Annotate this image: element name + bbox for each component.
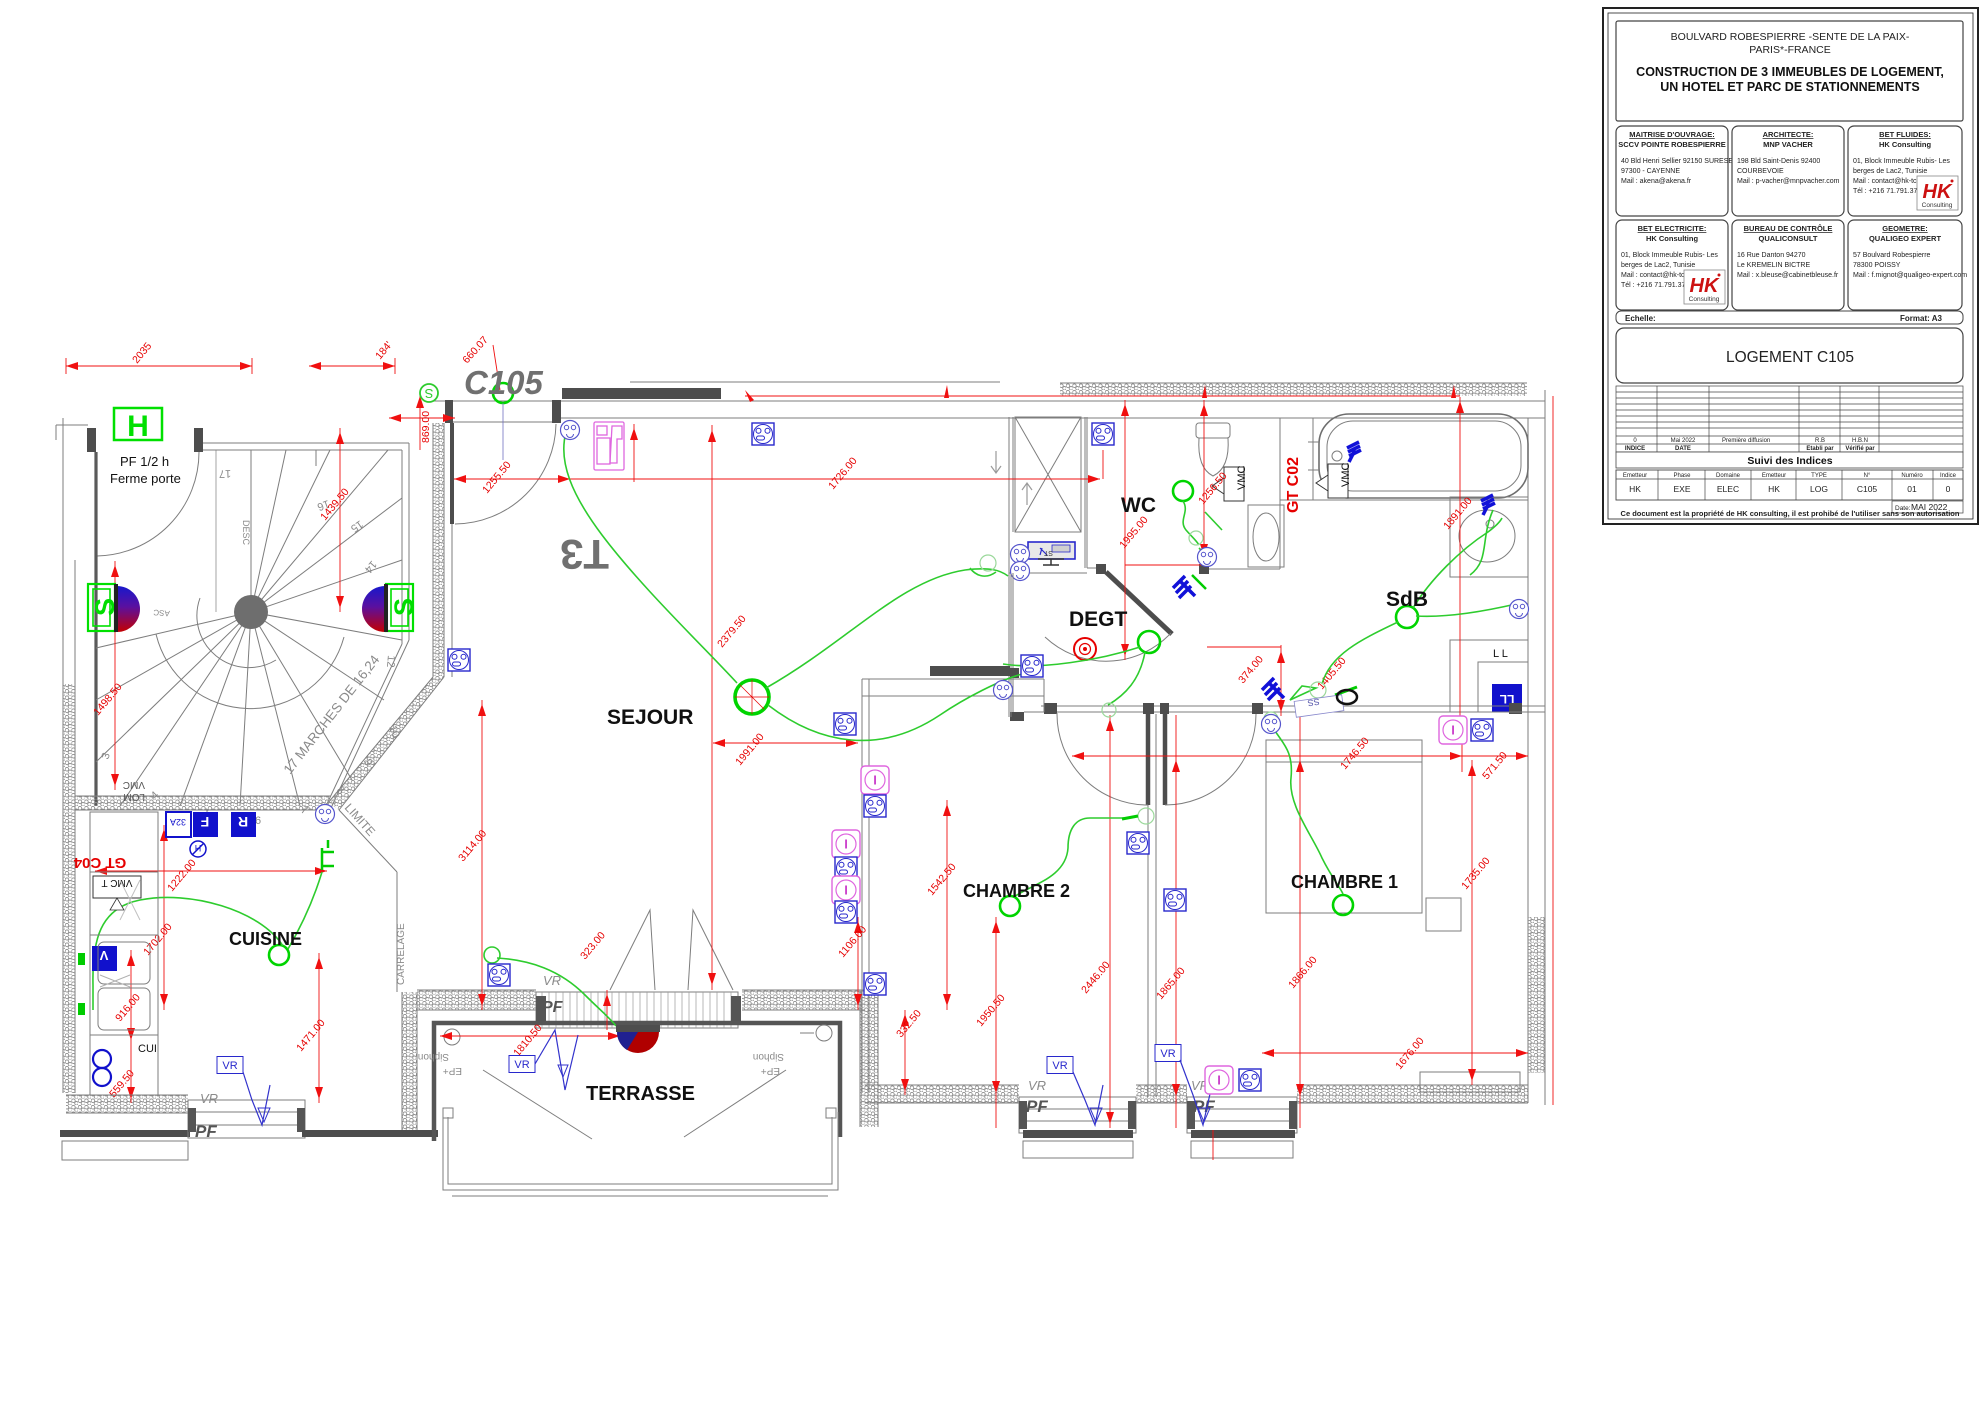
svg-text:Vérifié par: Vérifié par [1845,446,1875,452]
svg-text:Numéro: Numéro [1901,473,1923,479]
svg-text:WC: WC [1121,494,1156,517]
svg-text:PF: PF [542,999,564,1016]
svg-text:17: 17 [219,467,232,479]
svg-text:Mail : p-vacher@mnpvacher.com: Mail : p-vacher@mnpvacher.com [1737,178,1840,185]
svg-text:EXE: EXE [1673,484,1690,494]
svg-text:berges de Lac2, Tunisie: berges de Lac2, Tunisie [1621,262,1695,269]
svg-text:198 Bld Saint-Denis 92400: 198 Bld Saint-Denis 92400 [1737,158,1820,165]
svg-text:869.00: 869.00 [420,411,432,443]
svg-text:HK Consulting: HK Consulting [1879,140,1931,149]
svg-text:PF 1/2 h: PF 1/2 h [120,454,169,469]
svg-text:Ce document est la propriété d: Ce document est la propriété de HK consu… [1621,509,1960,518]
svg-text:SS: SS [1307,697,1320,709]
svg-text:0: 0 [1946,484,1951,494]
svg-text:Suivi des Indices: Suivi des Indices [1747,455,1832,467]
svg-text:EP+: EP+ [443,1065,462,1076]
svg-text:CARRELAGE: CARRELAGE [396,923,407,985]
svg-text:C105: C105 [464,364,544,401]
svg-text:HK: HK [1629,484,1641,494]
svg-text:S: S [389,598,419,616]
svg-text:Consulting: Consulting [1689,296,1720,303]
svg-text:Mail : f.mignot@qualigeo-exper: Mail : f.mignot@qualigeo-expert.com [1853,272,1967,279]
svg-text:T3: T3 [560,531,609,578]
svg-text:01, Block Immeuble Rubis- Les: 01, Block Immeuble Rubis- Les [1853,158,1950,165]
svg-text:CONSTRUCTION DE 3 IMMEUBLES DE: CONSTRUCTION DE 3 IMMEUBLES DE LOGEMENT, [1636,65,1944,79]
svg-text:SEJOUR: SEJOUR [607,706,693,729]
svg-text:CUI: CUI [138,1043,157,1055]
svg-text:VMC: VMC [1340,463,1352,488]
svg-text:QUALIGEO EXPERT: QUALIGEO EXPERT [1869,234,1942,243]
svg-text:97300 - CAYENNE: 97300 - CAYENNE [1621,168,1680,175]
svg-text:HK: HK [1768,484,1780,494]
svg-text:VMC: VMC [123,779,145,790]
svg-text:Le KREMELIN BICTRE: Le KREMELIN BICTRE [1737,262,1810,269]
svg-text:Emetteur: Emetteur [1623,473,1647,479]
svg-text:SCCV POINTE ROBESPIERRE: SCCV POINTE ROBESPIERRE [1618,140,1726,149]
svg-text:01: 01 [1907,484,1917,494]
svg-text:VR: VR [200,1091,218,1106]
svg-text:Consulting: Consulting [1922,202,1953,209]
svg-text:Emetteur: Emetteur [1762,473,1786,479]
svg-text:Siphon: Siphon [418,1051,449,1062]
svg-text:N°: N° [1864,473,1871,479]
svg-text:LOG: LOG [1810,484,1828,494]
svg-text:V: V [99,948,108,963]
svg-text:VMC T: VMC T [102,877,133,888]
svg-text:Ferme porte: Ferme porte [110,471,181,486]
svg-text:40 Bld Henri Sellier 92150 SUR: 40 Bld Henri Sellier 92150 SURESENS [1621,158,1743,165]
svg-text:DATE: DATE [1675,446,1691,452]
svg-text:DESC: DESC [241,520,251,546]
svg-text:MAITRISE D'OUVRAGE:: MAITRISE D'OUVRAGE: [1629,130,1715,139]
svg-text:PF: PF [195,1122,217,1141]
svg-text:PF: PF [1026,1097,1048,1116]
svg-text:Tél : +216 71.791.373: Tél : +216 71.791.373 [1853,188,1921,195]
svg-text:ST: ST [1043,549,1053,556]
svg-text:R.B: R.B [1815,438,1825,444]
svg-text:SdB: SdB [1386,588,1428,611]
svg-text:12: 12 [384,655,397,668]
svg-text:ASC: ASC [153,608,170,618]
svg-text:H.B.N: H.B.N [1852,438,1868,444]
svg-text:BET FLUIDES:: BET FLUIDES: [1879,130,1931,139]
svg-text:Phase: Phase [1673,473,1691,479]
svg-text:QUALICONSULT: QUALICONSULT [1758,234,1817,243]
svg-text:LOGEMENT C105: LOGEMENT C105 [1726,349,1854,366]
svg-text:Indice: Indice [1940,473,1957,479]
svg-text:MNP VACHER: MNP VACHER [1763,140,1813,149]
svg-text:LOM: LOM [123,791,145,802]
svg-text:UN HOTEL ET PARC DE STATIONNEM: UN HOTEL ET PARC DE STATIONNEMENTS [1660,80,1920,94]
svg-text:INDICE: INDICE [1625,446,1645,452]
svg-text:Format: A3: Format: A3 [1900,314,1942,323]
svg-text:S: S [424,386,433,401]
svg-text:Mai 2022: Mai 2022 [1671,438,1696,444]
svg-text:GEOMETRE:: GEOMETRE: [1882,224,1927,233]
svg-text:VR: VR [1028,1078,1046,1093]
svg-text:BUREAU DE CONTRÔLE: BUREAU DE CONTRÔLE [1744,224,1833,233]
svg-text:GT C04: GT C04 [73,854,126,871]
svg-text:Domaine: Domaine [1716,473,1741,479]
svg-text:HK: HK [1923,181,1953,203]
svg-text:CUISINE: CUISINE [229,929,302,949]
svg-text:57 Boulvard Robespierre: 57 Boulvard Robespierre [1853,252,1931,259]
svg-text:DEGT: DEGT [1069,608,1128,631]
svg-text:TERRASSE: TERRASSE [586,1083,695,1105]
svg-text:CHAMBRE 2: CHAMBRE 2 [963,881,1070,901]
svg-text:BOULVARD ROBESPIERRE -SENTE DE: BOULVARD ROBESPIERRE -SENTE DE LA PAIX- [1671,31,1910,43]
svg-text:CHAMBRE 1: CHAMBRE 1 [1291,872,1398,892]
svg-text:ELEC: ELEC [1717,484,1739,494]
svg-text:78300 POISSY: 78300 POISSY [1853,262,1901,269]
svg-text:berges de Lac2, Tunisie: berges de Lac2, Tunisie [1853,168,1927,175]
svg-text:TYPE: TYPE [1811,473,1827,479]
svg-text:COURBEVOIE: COURBEVOIE [1737,168,1784,175]
svg-text:R: R [238,814,248,830]
svg-text:F: F [200,814,209,830]
svg-text:Siphon: Siphon [753,1051,784,1062]
svg-text:Echelle:: Echelle: [1625,314,1656,323]
svg-text:C105: C105 [1857,484,1878,494]
svg-text:PARIS*-FRANCE: PARIS*-FRANCE [1749,44,1830,56]
svg-text:16 Rue Danton 94270: 16 Rue Danton 94270 [1737,252,1806,259]
svg-text:Mail : x.bleuse@cabinetbleuse.: Mail : x.bleuse@cabinetbleuse.fr [1737,272,1839,279]
svg-text:HK Consulting: HK Consulting [1646,234,1698,243]
svg-text:EP+: EP+ [761,1065,780,1076]
svg-text:Tél : +216 71.791.373: Tél : +216 71.791.373 [1621,282,1689,289]
svg-text:Mail : akena@akena.fr: Mail : akena@akena.fr [1621,178,1692,185]
svg-text:Première diffusion: Première diffusion [1722,438,1770,444]
svg-text:01, Block Immeuble Rubis- Les: 01, Block Immeuble Rubis- Les [1621,252,1718,259]
svg-text:H: H [127,410,149,443]
svg-text:Etabli par: Etabli par [1806,446,1834,452]
svg-text:ARCHITECTE:: ARCHITECTE: [1763,130,1814,139]
svg-text:L L: L L [1493,648,1508,660]
svg-text:VMC: VMC [1236,466,1248,491]
svg-text:H: H [195,843,202,853]
svg-text:HK: HK [1690,275,1720,297]
svg-text:GT C02: GT C02 [1285,457,1302,513]
svg-text:32A: 32A [170,817,186,827]
svg-text:BET ELECTRICITE:: BET ELECTRICITE: [1638,224,1707,233]
